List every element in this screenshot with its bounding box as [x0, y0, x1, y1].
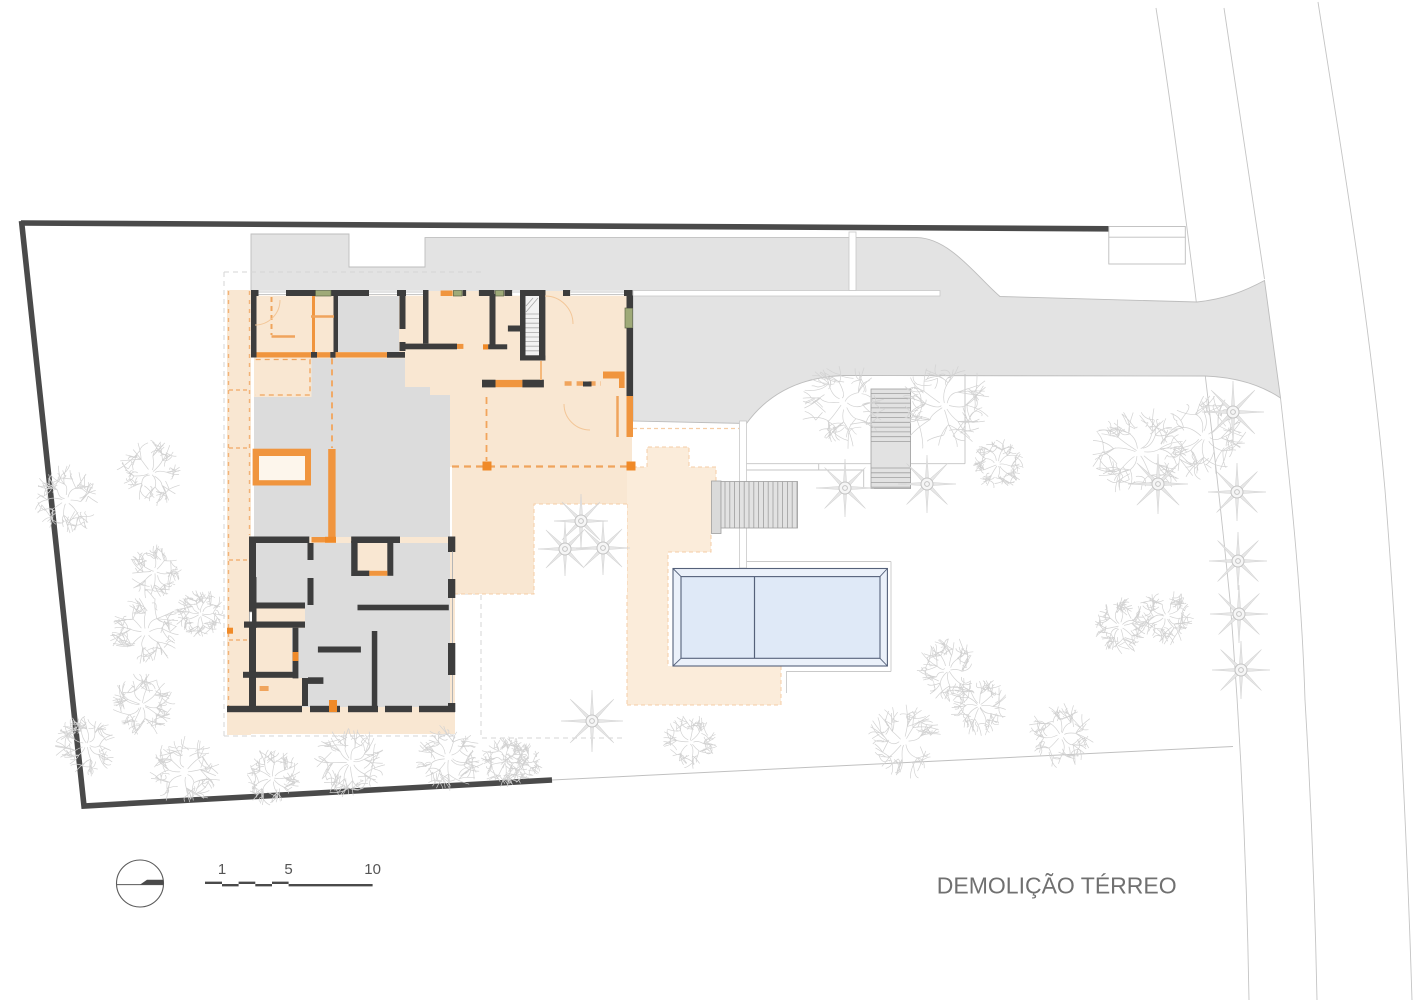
- svg-text:DEMOLIÇÃO TÉRREO: DEMOLIÇÃO TÉRREO: [937, 873, 1177, 899]
- svg-text:5: 5: [284, 861, 292, 878]
- svg-text:10: 10: [364, 861, 381, 878]
- svg-text:1: 1: [218, 861, 226, 878]
